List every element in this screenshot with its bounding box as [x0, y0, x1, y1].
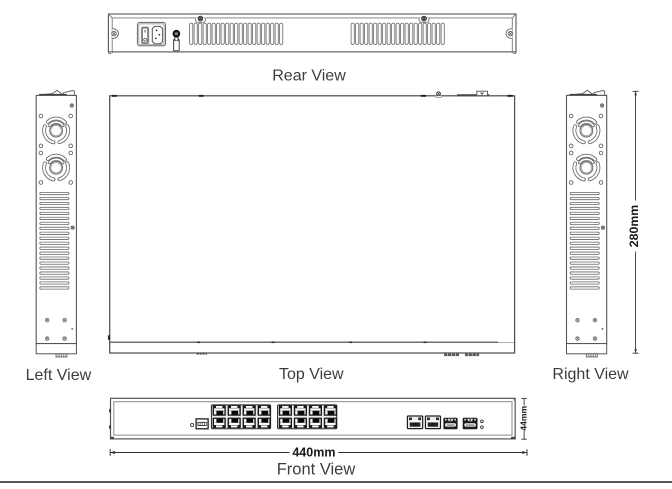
svg-text:Right View: Right View	[552, 366, 629, 383]
svg-text:Rear View: Rear View	[272, 67, 346, 84]
svg-text:Top View: Top View	[279, 366, 344, 383]
svg-text:440mm: 440mm	[292, 446, 335, 460]
svg-text:280mm: 280mm	[627, 205, 641, 247]
svg-text:Front View: Front View	[277, 461, 356, 479]
svg-text:Left View: Left View	[26, 367, 92, 384]
svg-text:44mm: 44mm	[518, 406, 528, 431]
